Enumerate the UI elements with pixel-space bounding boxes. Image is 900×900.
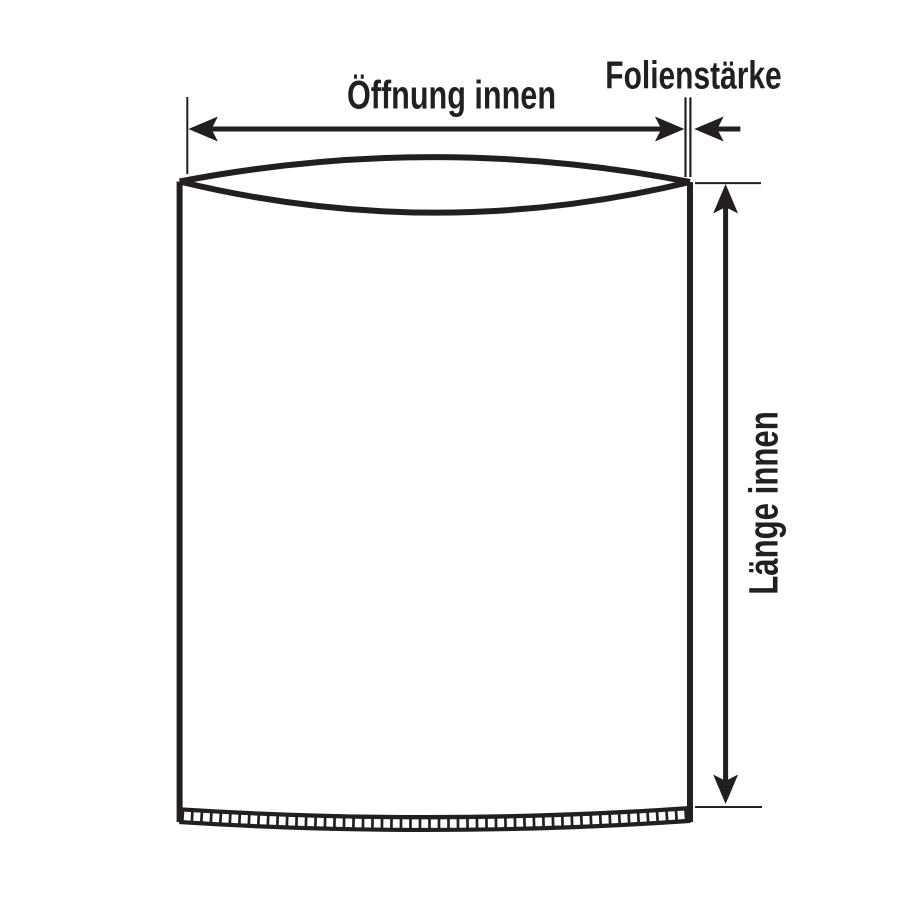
svg-text:Länge innen: Länge innen bbox=[740, 411, 786, 594]
svg-text:Folienstärke: Folienstärke bbox=[605, 55, 781, 98]
svg-text:Öffnung innen: Öffnung innen bbox=[347, 73, 556, 118]
